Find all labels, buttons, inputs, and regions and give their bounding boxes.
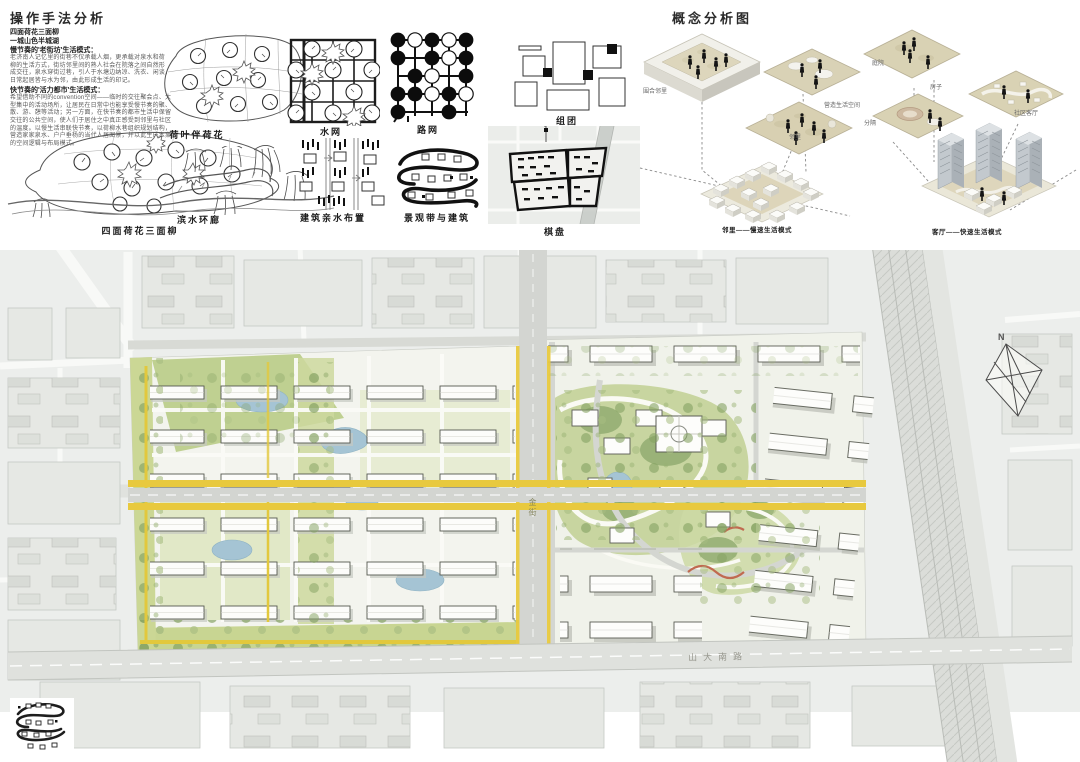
towers-caption: 客厅——快速生活模式: [897, 226, 1037, 236]
method-bold-3: 慢节奏的'老街坊'生活模式：: [10, 46, 146, 55]
method-para1-line: 老济南人记忆里的街巷不仅承载人烟，更承载对泉水和荷: [10, 55, 146, 63]
sketch-road-network: [388, 32, 476, 124]
site-plan: [0, 250, 1080, 762]
method-para2-line: 希望借助不同的convention空间——临时的交往聚会点、大: [10, 95, 146, 103]
method-para1-line: 日常起居皆与水为邻，由此形成生活的印记。: [10, 78, 146, 86]
sketch-cluster: [503, 36, 631, 114]
divide-label: 分隔: [864, 118, 876, 127]
concept-courtyard: [693, 148, 831, 230]
concept-space-plate: [758, 44, 866, 102]
presentation-board: 操作手法分析 四面荷花三面柳 一城山色半城湖 慢节奏的'老街坊'生活模式： 老济…: [0, 0, 1080, 762]
method-para2-line: 散、游、憩等活动；另一方面，在快节奏的都市生活中保留: [10, 110, 146, 118]
sketch-building-water: [296, 138, 388, 210]
method-panel-title: 操作手法分析: [10, 8, 106, 27]
sketch-landscape-belt: [392, 144, 484, 210]
tray-label: 围合邻里: [643, 86, 667, 95]
sketch-water-network: [286, 36, 380, 126]
courtyard-caption: 邻里——慢速生活模式: [687, 224, 827, 234]
community-label: 社区客厅: [1014, 108, 1038, 117]
caption-leaf-flower: 荷叶伴荷花: [137, 128, 257, 141]
mid-plate-label: 邻里: [765, 132, 825, 141]
vertical-road-label: 金街: [527, 498, 538, 518]
space-label: 营造生活空间: [824, 100, 860, 109]
roof-label: 庭院: [872, 58, 884, 67]
north-label: N: [998, 332, 1005, 342]
sketch-waterfront-corridor: [158, 146, 278, 212]
caption-building-water: 建筑亲水布置: [283, 211, 383, 224]
concept-towers: [912, 122, 1067, 234]
south-road-label: 山大南路: [688, 649, 748, 663]
caption-water-network: 水网: [291, 125, 371, 138]
sketch-chessboard: [488, 126, 640, 224]
logo-stamp: [10, 698, 74, 756]
caption-landscape-belt: 景观带与建筑: [387, 211, 487, 224]
method-bold-1: 四面荷花三面柳: [10, 28, 146, 37]
caption-waterfront: 滨水环廊: [149, 213, 249, 226]
caption-road-network: 路网: [388, 123, 468, 136]
method-bold-4: 快节奏的'活力都市'生活模式：: [10, 86, 146, 95]
method-bold-2: 一城山色半城湖: [10, 37, 146, 46]
concept-roof-plate: [858, 24, 966, 86]
method-para1-line: 成交往，泉水穿街过巷，引人于水塘边纳凉、洗衣、闲谈，: [10, 70, 146, 78]
caption-chessboard: 棋盘: [515, 225, 595, 238]
